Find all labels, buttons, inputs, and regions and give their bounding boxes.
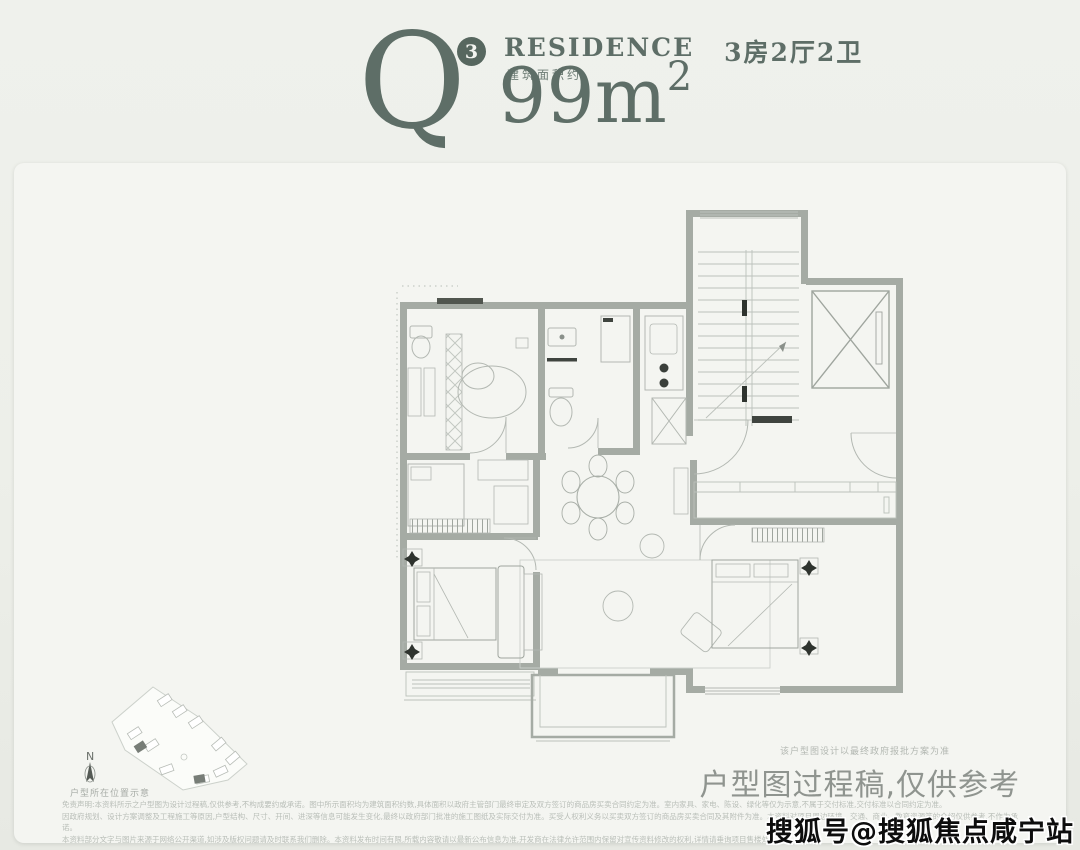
kitchen [645, 316, 683, 390]
north-label: N [86, 750, 94, 763]
cabinet-band [694, 482, 896, 518]
process-note: 户型图过程稿,仅供参考 [699, 760, 1020, 804]
bedroom-left [403, 519, 536, 660]
stairwell [698, 212, 799, 426]
bathroom-middle [547, 316, 630, 448]
room-top-left [408, 326, 528, 453]
process-note-small: 该户型图设计以最终政府报批方案为准 [745, 744, 985, 757]
bay-window-left [404, 672, 536, 700]
plan-number-badge: 3 [457, 37, 486, 66]
siteplan-caption: 户型所在位置示意 [70, 786, 150, 799]
walls [400, 210, 903, 693]
area-main: 99m [498, 51, 667, 140]
floorplan-drawing [355, 185, 935, 750]
disclaimer-line: 免责声明:本资料所示之户型图为设计过程稿,仅供参考,不构成要约或承诺。图中所示面… [62, 799, 1018, 811]
siteplan-drawing: N [58, 636, 268, 806]
room-study [408, 460, 528, 526]
service-shaft [652, 398, 686, 444]
entry-door [851, 433, 896, 478]
balcony [532, 675, 674, 741]
bedroom-right [700, 525, 824, 694]
floorplan-page: { "header": { "plan_letter": "Q", "plan_… [0, 0, 1080, 850]
north-arrow-icon: N [85, 750, 95, 782]
area-superscript: 2 [667, 54, 692, 100]
layout-label: 3房2厅2卫 [724, 33, 863, 69]
dining-table [562, 455, 634, 540]
watermark: 搜狐号@搜狐焦点咸宁站 [766, 810, 1074, 849]
area-value: 99m2 [498, 58, 692, 134]
plan-type-letter: Q [358, 16, 466, 148]
elevator-shaft [812, 291, 889, 388]
